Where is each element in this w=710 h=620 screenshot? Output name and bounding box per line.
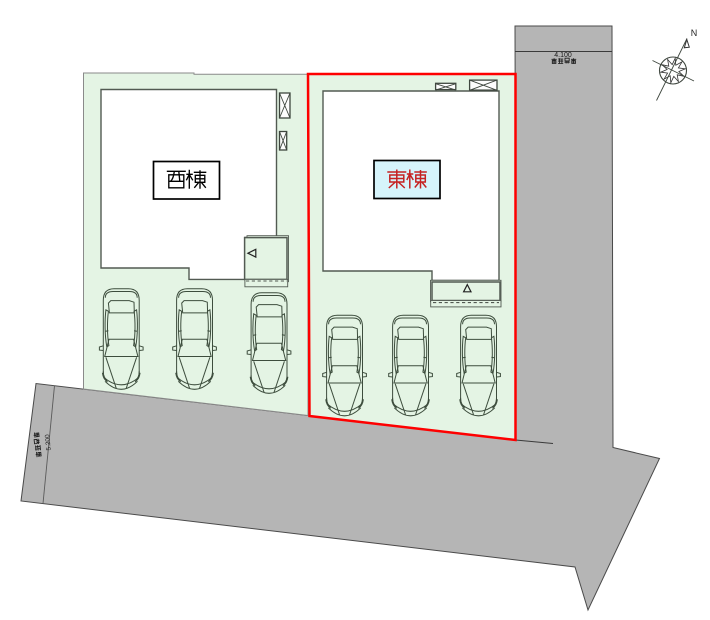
svg-text:N: N — [691, 28, 698, 38]
